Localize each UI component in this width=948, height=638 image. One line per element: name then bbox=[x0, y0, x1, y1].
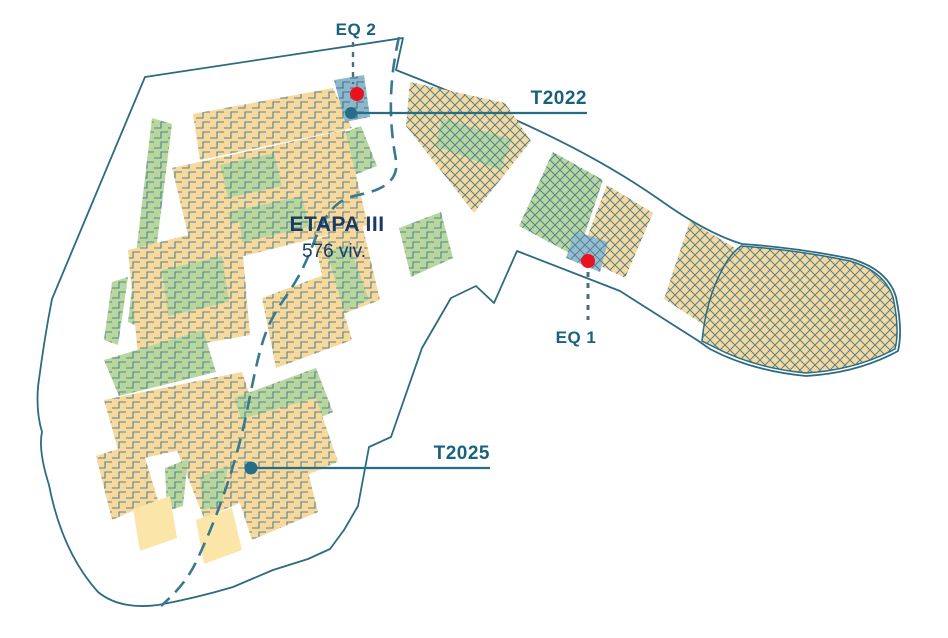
t2022-label: T2022 bbox=[531, 88, 587, 109]
stage-title: ETAPA III bbox=[289, 213, 384, 236]
eq2-label: EQ 2 bbox=[336, 20, 377, 39]
stage-subtitle: 576 viv. bbox=[302, 241, 366, 262]
eq1-marker bbox=[581, 254, 595, 268]
site-plan-svg: EQ 2 T2022 EQ 1 T2025 ETAPA III 576 viv. bbox=[0, 0, 948, 638]
t2025-marker bbox=[245, 462, 258, 475]
t2025-label: T2025 bbox=[434, 443, 490, 464]
eq2-marker bbox=[350, 87, 364, 101]
master-plan-map: EQ 2 T2022 EQ 1 T2025 ETAPA III 576 viv. bbox=[0, 0, 948, 638]
t2022-marker bbox=[345, 107, 357, 119]
eq1-label: EQ 1 bbox=[556, 328, 597, 347]
